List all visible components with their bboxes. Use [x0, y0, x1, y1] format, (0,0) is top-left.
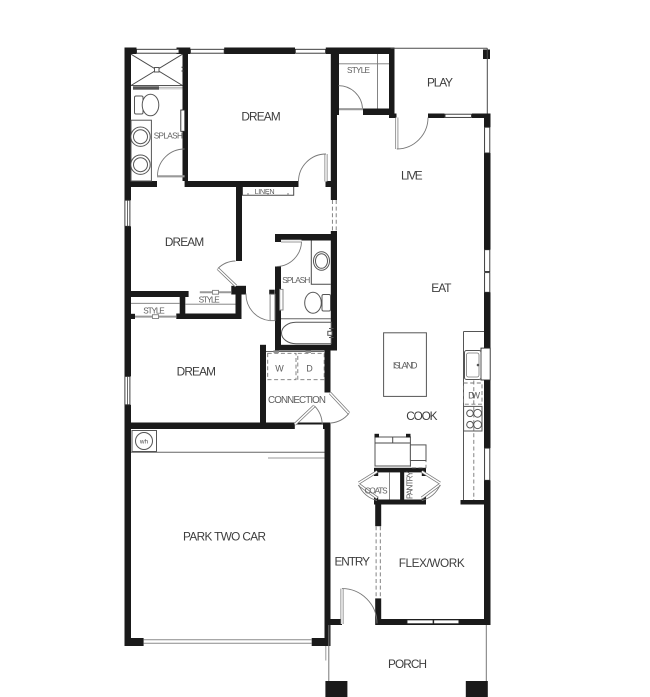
svg-text:ENTRY: ENTRY	[334, 555, 370, 569]
svg-text:DREAM: DREAM	[241, 109, 280, 123]
svg-text:D: D	[306, 364, 313, 374]
svg-text:W: W	[275, 364, 284, 374]
svg-text:PLAY: PLAY	[427, 76, 453, 90]
svg-text:wh: wh	[139, 438, 149, 445]
svg-text:STYLE: STYLE	[143, 307, 165, 316]
svg-text:FLEX/WORK: FLEX/WORK	[399, 556, 465, 570]
svg-text:EAT: EAT	[431, 281, 451, 295]
svg-text:SPLASH: SPLASH	[282, 276, 310, 285]
svg-text:COATS: COATS	[365, 487, 389, 496]
svg-text:DREAM: DREAM	[165, 235, 204, 249]
svg-text:DREAM: DREAM	[177, 364, 216, 378]
svg-text:ISLAND: ISLAND	[393, 361, 418, 371]
svg-text:PORCH: PORCH	[388, 657, 427, 671]
svg-text:PANTRY: PANTRY	[406, 470, 415, 499]
svg-text:STYLE: STYLE	[199, 295, 221, 304]
svg-text:LIVE: LIVE	[401, 169, 423, 183]
svg-text:PARK TWO CAR: PARK TWO CAR	[183, 530, 266, 544]
svg-text:SPLASH: SPLASH	[154, 132, 183, 141]
svg-text:LINEN: LINEN	[255, 187, 275, 196]
svg-text:CONNECTION: CONNECTION	[268, 395, 326, 406]
svg-text:COOK: COOK	[406, 409, 437, 423]
svg-text:STYLE: STYLE	[347, 66, 371, 75]
svg-text:DW: DW	[468, 391, 481, 401]
